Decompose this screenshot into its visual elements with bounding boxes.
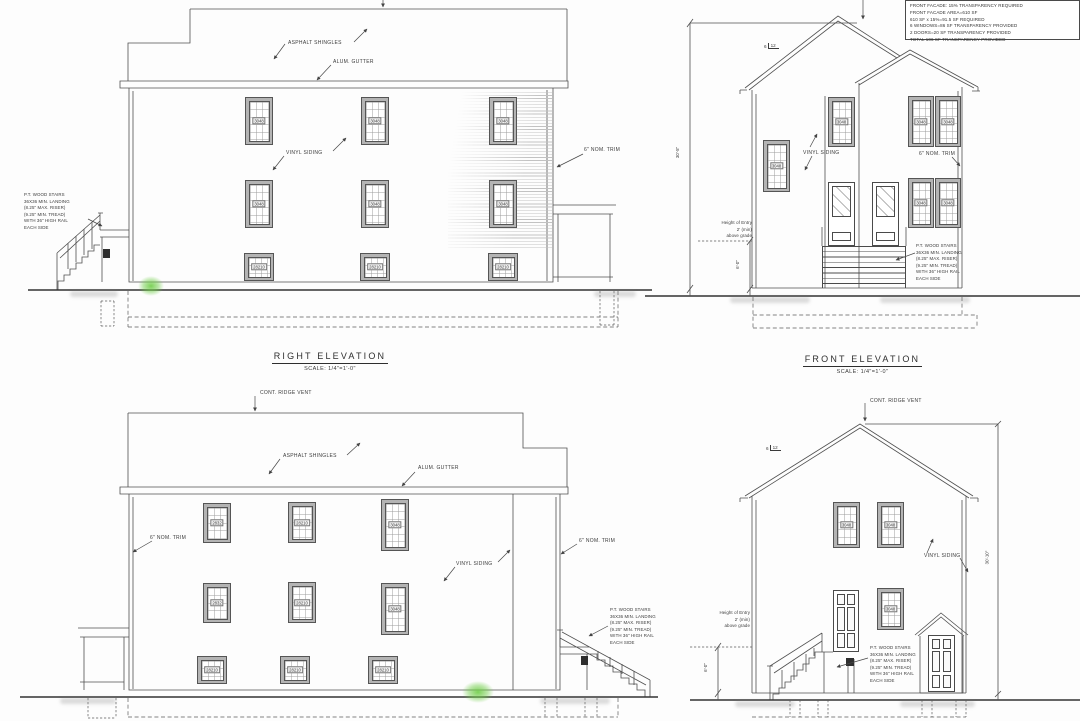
vinyl-siding-label: VINYL SIDING (286, 150, 322, 156)
ground-shadow (540, 698, 610, 704)
window-2832: 2832 (203, 503, 231, 543)
door-panel (837, 607, 845, 631)
alum-gutter-label: ALUM. GUTTER (418, 465, 459, 471)
ridge-vent-label-clipped: CONT. RIDGE VENT (340, 0, 382, 1)
rear-entry-door (833, 590, 859, 652)
window-code-label: 28210 (367, 263, 383, 270)
window-3048: 3048 (381, 499, 409, 551)
window-28210: 28210 (360, 253, 390, 281)
door-panel (876, 232, 895, 241)
ground-shadow (900, 701, 975, 707)
door-glass (832, 186, 851, 217)
window-code-label: 28210 (294, 519, 310, 526)
vinyl-siding-label: VINYL SIDING (456, 561, 492, 567)
window-code-label: 3048 (388, 521, 401, 528)
nom-trim-label: 6" NOM. TRIM (584, 147, 620, 153)
roof-pitch-marker: 612 (766, 445, 781, 451)
window-28210: 28210 (288, 582, 316, 623)
door-panel (837, 633, 845, 648)
ground-shadow (70, 291, 118, 297)
roof-pitch-marker: 612 (764, 43, 779, 49)
ground-shadow (594, 291, 636, 297)
window-3048: 3048 (361, 180, 389, 228)
window-28210: 28210 (244, 253, 274, 281)
window-code-label: 3048 (496, 200, 509, 207)
window-3048: 3048 (763, 140, 790, 192)
architectural-drawing-sheet: CONT. RIDGE VENT ASPHALT SHINGLES ALUM. … (0, 0, 1080, 721)
window-3048: 3048 (828, 97, 855, 147)
window-code-label: 28210 (287, 666, 303, 673)
entry-height-dim: 6'-0" (703, 663, 708, 672)
window-3048: 3048 (908, 96, 934, 147)
entry-door-right (872, 182, 899, 246)
door-panel (832, 232, 851, 241)
door-panel (943, 639, 951, 649)
stairs-note: P.T. WOOD STAIRS 36X36 MIN. LANDING (8.2… (610, 607, 672, 647)
window-code-label: 2832 (210, 519, 223, 526)
window-code-label: 3048 (835, 118, 848, 125)
window-code-label: 28210 (251, 263, 267, 270)
window-code-label: 3048 (941, 199, 954, 206)
window-code-label: 28210 (204, 666, 220, 673)
entry-height-note: Height of Entry 2' (min) above grade (712, 220, 752, 240)
pitch-run: 12 (770, 445, 781, 451)
asphalt-shingles-label: ASPHALT SHINGLES (288, 40, 342, 46)
window-28210: 28210 (368, 656, 398, 684)
front-elevation-scale: SCALE: 1/4"=1'-0" (775, 369, 950, 375)
right-elevation-title: RIGHT ELEVATION (272, 351, 389, 364)
ridge-vent-label-clipped: CONT. RIDGE VENT (836, 0, 878, 1)
building-height-dim: 30'-5" (675, 147, 680, 158)
right-elevation-linework (0, 0, 700, 385)
window-3048: 3048 (877, 502, 904, 548)
window-3048: 3048 (245, 180, 273, 228)
window-code-label: 3048 (368, 117, 381, 124)
window-code-label: 3048 (840, 521, 853, 528)
entry-door-left (828, 182, 855, 246)
door-panel (837, 594, 845, 605)
window-3048: 3048 (833, 502, 860, 548)
front-elevation-titleblock: FRONT ELEVATION SCALE: 1/4"=1'-0" (775, 349, 950, 375)
window-2832: 2832 (203, 583, 231, 623)
nom-trim-label-left: 6" NOM. TRIM (150, 535, 186, 541)
window-code-label: 3048 (252, 117, 265, 124)
door-panel (932, 675, 940, 688)
rear-elevation-drawing: CONT. RIDGE VENT 612 30'-10" Height of E… (640, 385, 1080, 721)
window-code-label: 28210 (375, 666, 391, 673)
left-elevation-linework (0, 385, 700, 721)
window-3048: 3048 (245, 97, 273, 145)
pitch-run: 12 (768, 43, 779, 49)
ground-shadow (880, 297, 970, 303)
stairs-note: P.T. WOOD STAIRS 36X36 MIN. LANDING (8.2… (870, 645, 932, 685)
front-elevation-drawing: CONT. RIDGE VENT FRONT FACADE: 15% TRANS… (640, 0, 1080, 385)
vinyl-siding-label: VINYL SIDING (924, 553, 960, 559)
entry-height-dim: 6'-0" (735, 260, 740, 269)
nom-trim-label-right: 6" NOM. TRIM (579, 538, 615, 544)
ridge-vent-label: CONT. RIDGE VENT (260, 390, 312, 396)
front-elevation-linework (640, 0, 1080, 385)
window-code-label: 28210 (294, 599, 310, 606)
window-code-label: 3048 (884, 605, 897, 612)
window-3048: 3048 (489, 97, 517, 145)
window-3048: 3048 (381, 583, 409, 635)
window-3048: 3048 (877, 588, 904, 630)
window-code-label: 3048 (914, 118, 927, 125)
door-panel (932, 651, 940, 672)
window-28210: 28210 (488, 253, 518, 281)
vinyl-siding-label: VINYL SIDING (803, 150, 839, 156)
right-elevation-scale: SCALE: 1/4"=1'-0" (240, 366, 420, 372)
pitch-rise: 6 (764, 44, 767, 49)
door-panel (847, 633, 855, 648)
door-panel (943, 675, 951, 688)
window-28210: 28210 (280, 656, 310, 684)
left-elevation-drawing: CONT. RIDGE VENT ASPHALT SHINGLES ALUM. … (0, 385, 700, 721)
alum-gutter-label: ALUM. GUTTER (333, 59, 374, 65)
window-3048: 3048 (361, 97, 389, 145)
window-28210: 28210 (288, 502, 316, 543)
window-28210: 28210 (197, 656, 227, 684)
door-panel (847, 594, 855, 605)
stairs-note: P.T. WOOD STAIRS 36X36 MIN. LANDING (8.2… (24, 192, 92, 232)
stairs-note: P.T. WOOD STAIRS 36X36 MIN. LANDING (8.2… (916, 243, 978, 283)
window-code-label: 2832 (210, 599, 223, 606)
ground-shadow (730, 297, 810, 303)
front-entry-stairs (822, 246, 906, 288)
right-elevation-drawing: CONT. RIDGE VENT ASPHALT SHINGLES ALUM. … (0, 0, 700, 385)
entry-height-note: Height of Entry 2' (min) above grade (710, 610, 750, 630)
window-code-label: 3048 (252, 200, 265, 207)
window-code-label: 3048 (388, 605, 401, 612)
window-code-label: 3048 (941, 118, 954, 125)
ridge-vent-label: CONT. RIDGE VENT (870, 398, 922, 404)
ground-shadow (735, 701, 795, 707)
front-elevation-title: FRONT ELEVATION (803, 354, 923, 367)
asphalt-shingles-label: ASPHALT SHINGLES (283, 453, 337, 459)
green-highlight-mark (138, 276, 164, 296)
window-3048: 3048 (935, 96, 961, 147)
window-code-label: 28210 (495, 263, 511, 270)
right-elevation-titleblock: RIGHT ELEVATION SCALE: 1/4"=1'-0" (240, 346, 420, 372)
window-3048: 3048 (908, 178, 934, 228)
door-glass (876, 186, 895, 217)
window-3048: 3048 (935, 178, 961, 228)
basement-entry-door (928, 635, 955, 692)
green-highlight-mark (462, 681, 494, 703)
nom-trim-label: 6" NOM. TRIM (919, 151, 955, 157)
window-code-label: 3048 (914, 199, 927, 206)
window-code-label: 3048 (884, 521, 897, 528)
door-panel (943, 651, 951, 672)
door-panel (932, 639, 940, 649)
window-3048: 3048 (489, 180, 517, 228)
pitch-rise: 6 (766, 446, 769, 451)
ground-shadow (60, 698, 116, 704)
building-height-dim: 30'-10" (984, 551, 989, 565)
window-code-label: 3048 (368, 200, 381, 207)
window-code-label: 3048 (770, 162, 783, 169)
door-panel (847, 607, 855, 631)
transparency-note-box: FRONT FACADE: 15% TRANSPARENCY REQUIRED … (905, 0, 1080, 40)
window-code-label: 3048 (496, 117, 509, 124)
